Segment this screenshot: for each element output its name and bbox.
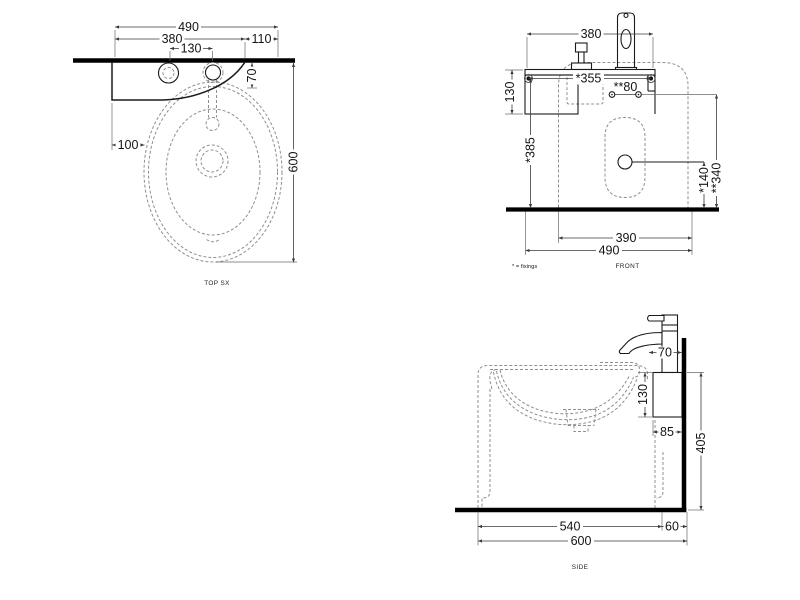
dim-text: 600 <box>571 534 592 548</box>
dim-front-basin-width: 390 <box>559 212 693 256</box>
dim-top-right-offset: 110 <box>245 32 278 46</box>
dim-side-bracket-depth: 85 <box>653 420 682 439</box>
tap-hole <box>203 63 223 83</box>
dim-text: 600 <box>287 152 301 173</box>
tap-spout <box>619 333 662 354</box>
dim-text: 70 <box>245 69 259 83</box>
basin-outline-dashed <box>144 80 282 262</box>
dim-text: 100 <box>118 138 139 152</box>
dim-text: 540 <box>560 520 581 534</box>
dim-text: 110 <box>252 32 272 46</box>
dim-text: *385 <box>524 137 538 163</box>
dim-text: 130 <box>503 82 517 103</box>
dim-front-bracket-height: 130 <box>503 70 523 114</box>
side-view: 70 130 85 405 <box>455 315 708 571</box>
dim-text: 405 <box>694 433 708 454</box>
dim-front-holes-spacing: **80 <box>609 80 641 97</box>
view-label-front: FRONT <box>615 263 639 270</box>
dim-text: *355 <box>576 72 602 86</box>
drain-hole <box>201 150 223 172</box>
drain-hole <box>618 155 632 169</box>
dim-front-fixings-height: *385 <box>524 79 538 209</box>
dim-side-wall-gap: 60 <box>662 512 687 546</box>
tap-side <box>619 315 677 373</box>
dim-text: 380 <box>581 27 602 41</box>
dim-top-overall-depth: 600 <box>216 63 301 263</box>
dim-text: **80 <box>614 80 638 94</box>
dim-text: 490 <box>599 244 620 258</box>
basin-technical-drawing: 490 380 110 130 70 <box>0 0 800 600</box>
tap-front <box>616 13 637 71</box>
dim-text: 60 <box>665 520 679 534</box>
dim-side-bracket-height: 130 <box>636 373 652 418</box>
dim-text: 130 <box>181 42 202 56</box>
technical-drawing-sheet: 490 380 110 130 70 <box>0 0 800 600</box>
tap-projection <box>206 118 219 131</box>
dim-text: 130 <box>636 384 650 405</box>
fixings-note: * = fixings <box>512 264 537 270</box>
view-label-top: TOP SX <box>204 280 230 287</box>
dim-side-bracket-floor: 405 <box>687 373 708 511</box>
dim-text: 70 <box>658 346 672 360</box>
tap-handle <box>648 316 665 322</box>
dim-front-holes-height: **340 <box>642 95 724 209</box>
shelf-outline <box>112 63 245 100</box>
dim-front-overall-width: 490 <box>526 212 693 258</box>
wall-bracket <box>653 373 682 418</box>
dim-side-overall-depth: 600 <box>478 534 687 548</box>
dim-text: 85 <box>660 425 674 439</box>
front-view: 380 *355 **80 130 <box>503 13 724 270</box>
top-view: 490 380 110 130 70 <box>73 20 301 287</box>
soap-dispenser-hole <box>159 63 179 83</box>
overflow-detail <box>207 240 220 242</box>
dim-top-left-offset: 100 <box>112 103 145 152</box>
left-bracket <box>525 75 578 114</box>
tap-body <box>662 315 678 373</box>
view-label-side: SIDE <box>572 564 589 571</box>
dim-top-wall-offset: 70 <box>245 63 259 88</box>
dim-text: **340 <box>710 163 724 194</box>
